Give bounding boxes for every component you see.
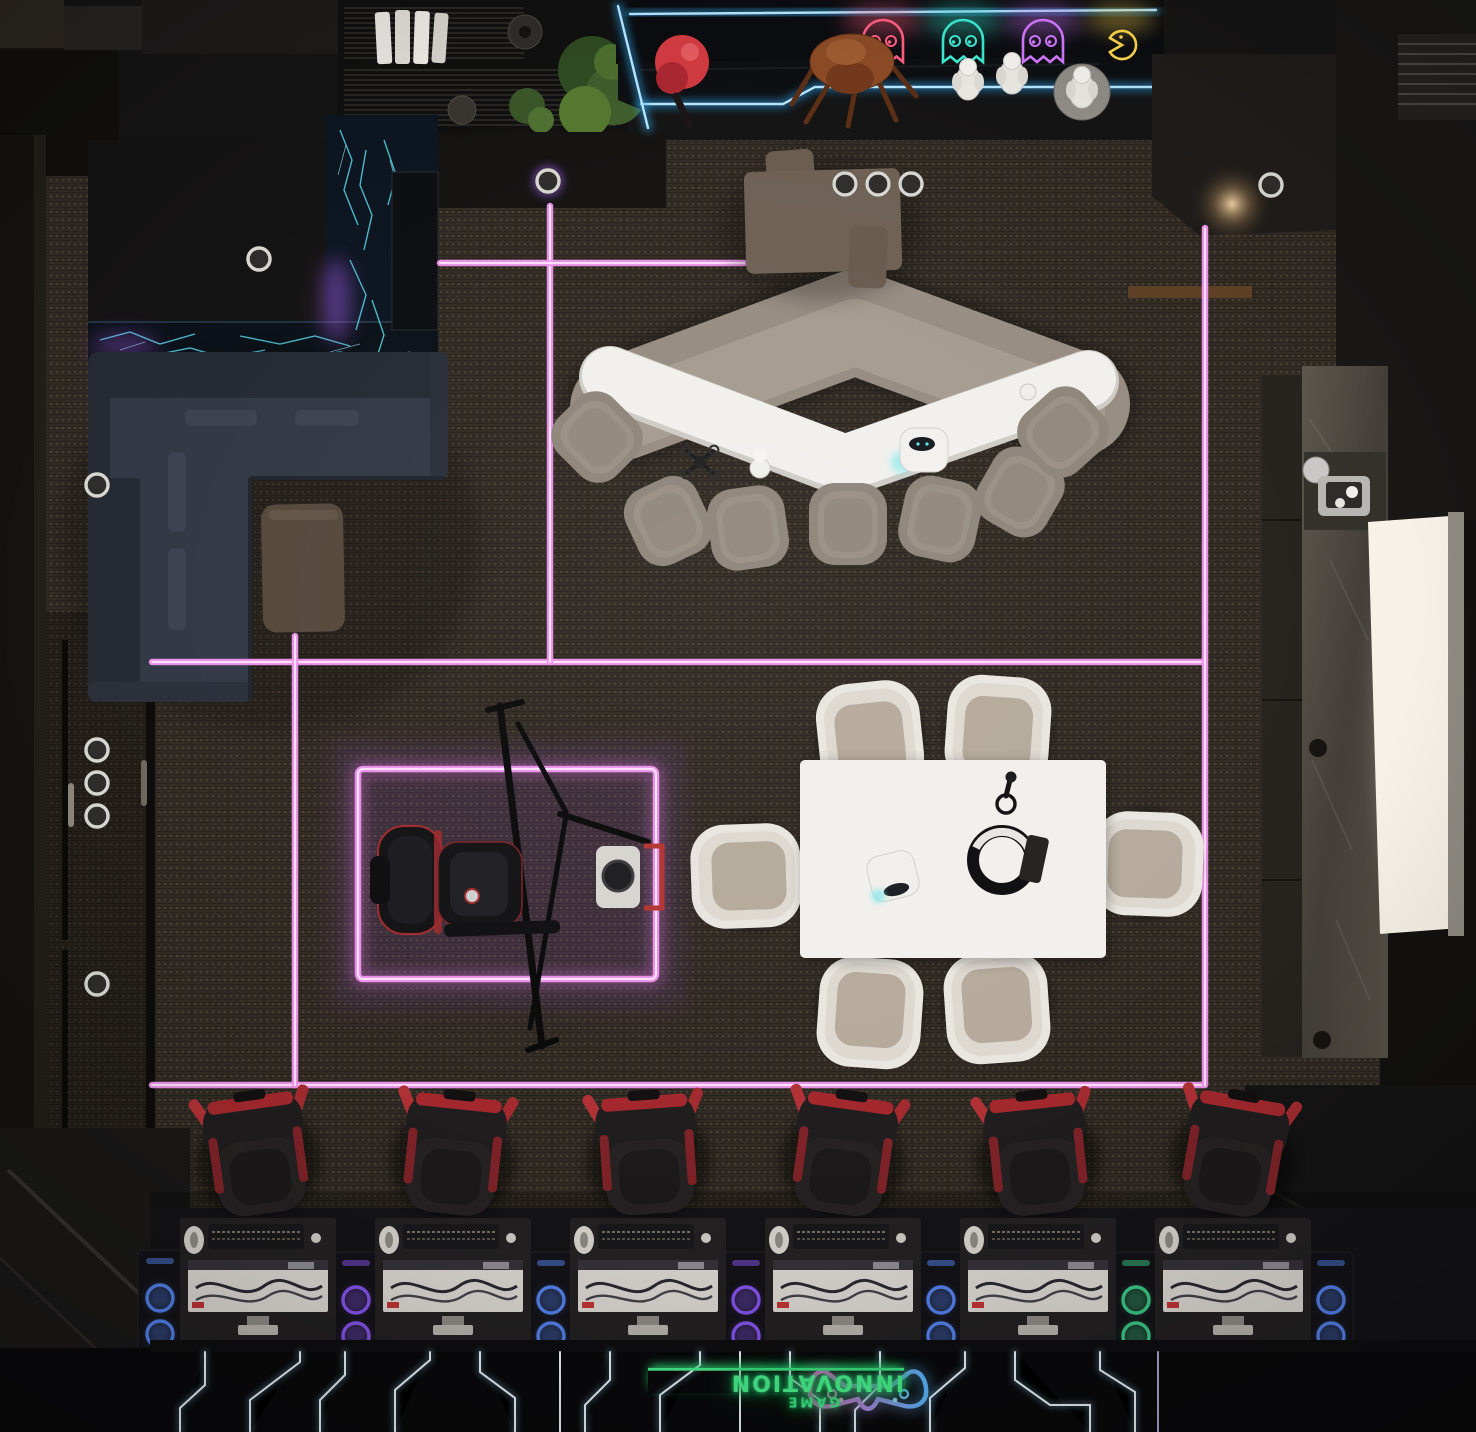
mini-drone — [682, 446, 719, 479]
chevron-lounge — [540, 322, 1119, 575]
sink-drain — [1309, 739, 1327, 757]
meeting-table — [800, 760, 1106, 958]
game-innovation-neon-sign: GAME INNOVATION — [648, 1368, 904, 1408]
ceiling-light — [898, 171, 924, 197]
backlit-light-panel — [1368, 516, 1460, 934]
ceiling-light — [1258, 172, 1284, 198]
arcade-display-wall — [616, 0, 1164, 128]
door-handle — [68, 783, 74, 827]
cup — [1346, 486, 1358, 498]
gaming-room-render: GAME INNOVATION — [0, 0, 1476, 1432]
racing-sim-zone — [330, 702, 686, 1050]
led-crack-wall — [88, 115, 438, 377]
wood-standing-table — [722, 148, 924, 300]
door-handle — [141, 760, 147, 806]
sink-drain — [1313, 1031, 1331, 1049]
corner-sofa-nook — [60, 350, 480, 730]
walnut-side-table — [261, 503, 345, 632]
yellow-glow — [1086, 4, 1154, 32]
vase — [448, 96, 476, 124]
sign-line-innovation: INNOVATION — [648, 1368, 904, 1394]
wall-screen — [392, 172, 438, 330]
room-vector-layer — [0, 0, 1476, 1432]
ceiling-light — [865, 171, 891, 197]
entry-booth — [1128, 54, 1336, 298]
stool — [848, 225, 888, 288]
cup — [1335, 498, 1345, 508]
cup — [1020, 384, 1036, 400]
purple-glow — [322, 258, 350, 342]
meeting-area — [689, 672, 1205, 1072]
ceiling-light — [832, 171, 858, 197]
sign-line-game: GAME — [648, 1394, 904, 1408]
wood-shelf — [1128, 286, 1252, 298]
vent-grille — [1398, 34, 1476, 120]
